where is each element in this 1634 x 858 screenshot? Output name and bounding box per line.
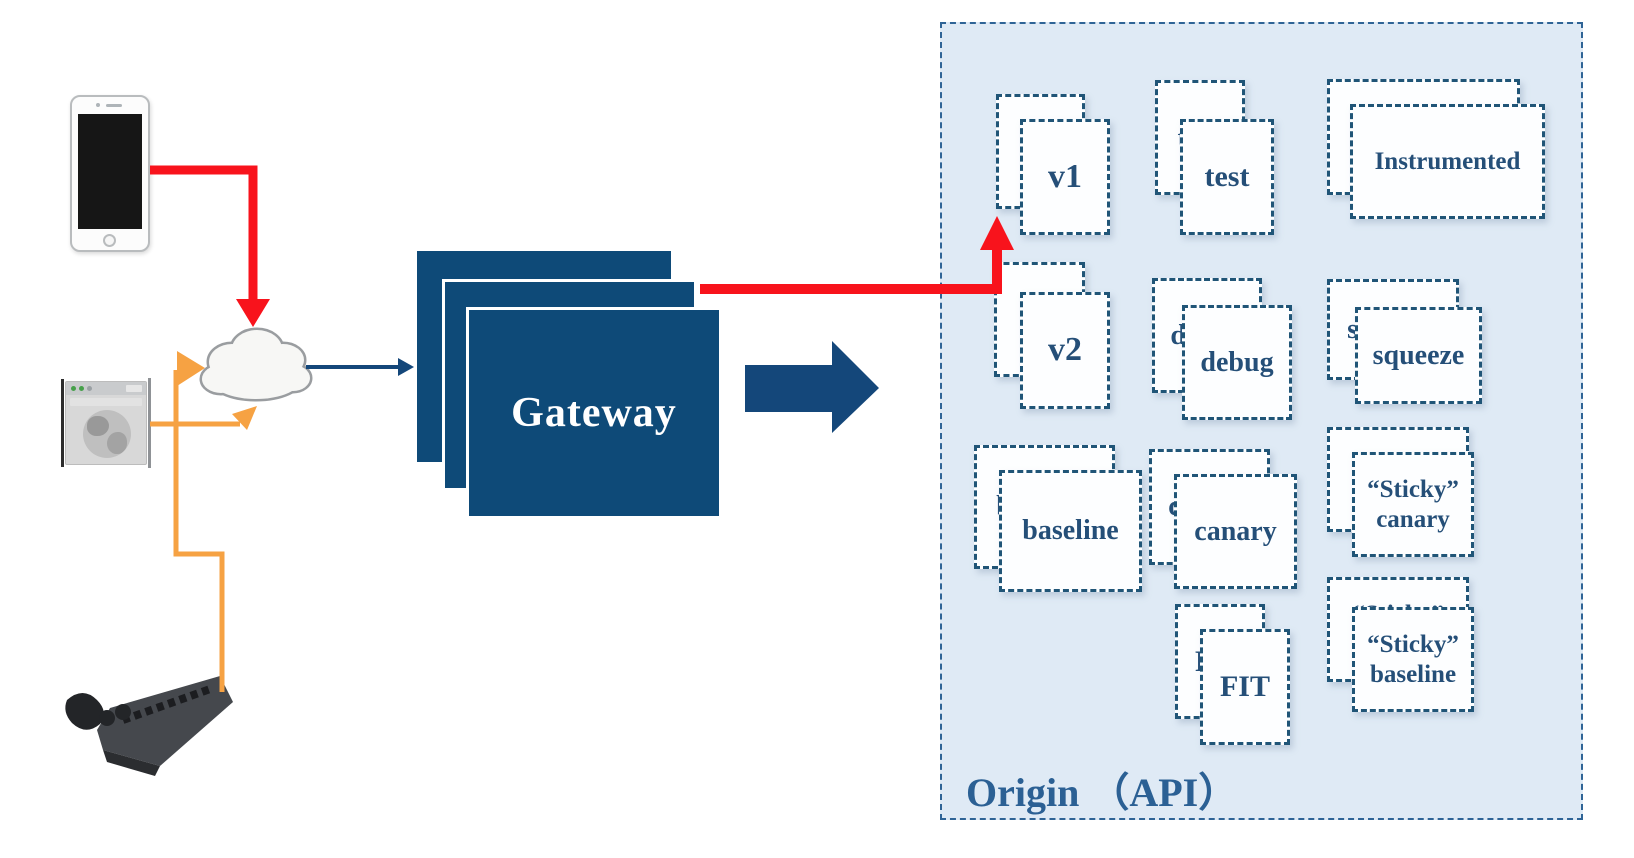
diagram-canvas: Gateway v1 v1 test test Instrumented Ins…: [0, 0, 1634, 858]
card-squeeze-front: squeeze: [1355, 307, 1482, 404]
blue-arrow-cloud-to-gateway: [306, 358, 414, 376]
phone-speaker: [106, 104, 122, 107]
globe-landmass: [87, 416, 109, 436]
browser-search-box: [126, 385, 142, 392]
card-sticky-baseline-front: “Sticky” baseline: [1352, 607, 1474, 712]
cloud-icon: [202, 330, 310, 399]
window-dot: [87, 386, 92, 391]
window-dot: [79, 386, 84, 391]
card-label: baseline: [1022, 514, 1118, 548]
card-canary-front: canary: [1174, 474, 1297, 589]
card-label: squeeze: [1373, 339, 1465, 373]
card-debug-front: debug: [1182, 305, 1292, 420]
web-browser-icon: [61, 378, 151, 468]
card-v1-front: v1: [1020, 119, 1110, 235]
card-label: v1: [1048, 157, 1082, 198]
browser-right-edge: [148, 378, 151, 468]
red-arrow-phone-to-cloud: [150, 170, 270, 327]
globe-icon: [83, 410, 131, 458]
browser-left-edge: [61, 379, 64, 467]
phone-screen: [78, 114, 142, 229]
card-instrumented-front: Instrumented: [1350, 104, 1545, 219]
card-baseline-front: baseline: [999, 470, 1142, 592]
card-v2-front: v2: [1020, 292, 1110, 409]
card-label: debug: [1200, 346, 1273, 380]
card-label: FIT: [1220, 669, 1270, 705]
globe-landmass: [107, 432, 127, 454]
browser-title-bar: [66, 382, 146, 395]
orange-arrow-console-to-cloud: [176, 351, 222, 692]
origin-region-label: Origin （API）: [966, 760, 1238, 818]
game-console-icon: [55, 668, 235, 783]
smartphone-icon: [70, 95, 150, 252]
card-sticky-canary-front: “Sticky” canary: [1352, 452, 1474, 557]
orange-arrow-browser-to-cloud: [150, 406, 257, 430]
card-label: test: [1205, 159, 1250, 195]
phone-home-button: [103, 234, 116, 247]
card-label: “Sticky” canary: [1367, 475, 1459, 535]
card-label: v2: [1048, 330, 1082, 371]
window-dot: [71, 386, 76, 391]
card-label: “Sticky” baseline: [1367, 630, 1459, 690]
gateway-label: Gateway: [466, 307, 722, 519]
phone-camera-dot: [96, 103, 100, 107]
browser-url-bar: [70, 398, 142, 406]
browser-window: [65, 381, 147, 465]
card-fit-front: FIT: [1200, 629, 1290, 745]
card-label: Instrumented: [1375, 147, 1521, 177]
card-label: canary: [1194, 515, 1276, 549]
card-test-front: test: [1180, 119, 1274, 235]
origin-api-region: v1 v1 test test Instrumented Instrumente…: [940, 22, 1583, 820]
block-arrow-gateway-to-origin: [745, 341, 879, 433]
